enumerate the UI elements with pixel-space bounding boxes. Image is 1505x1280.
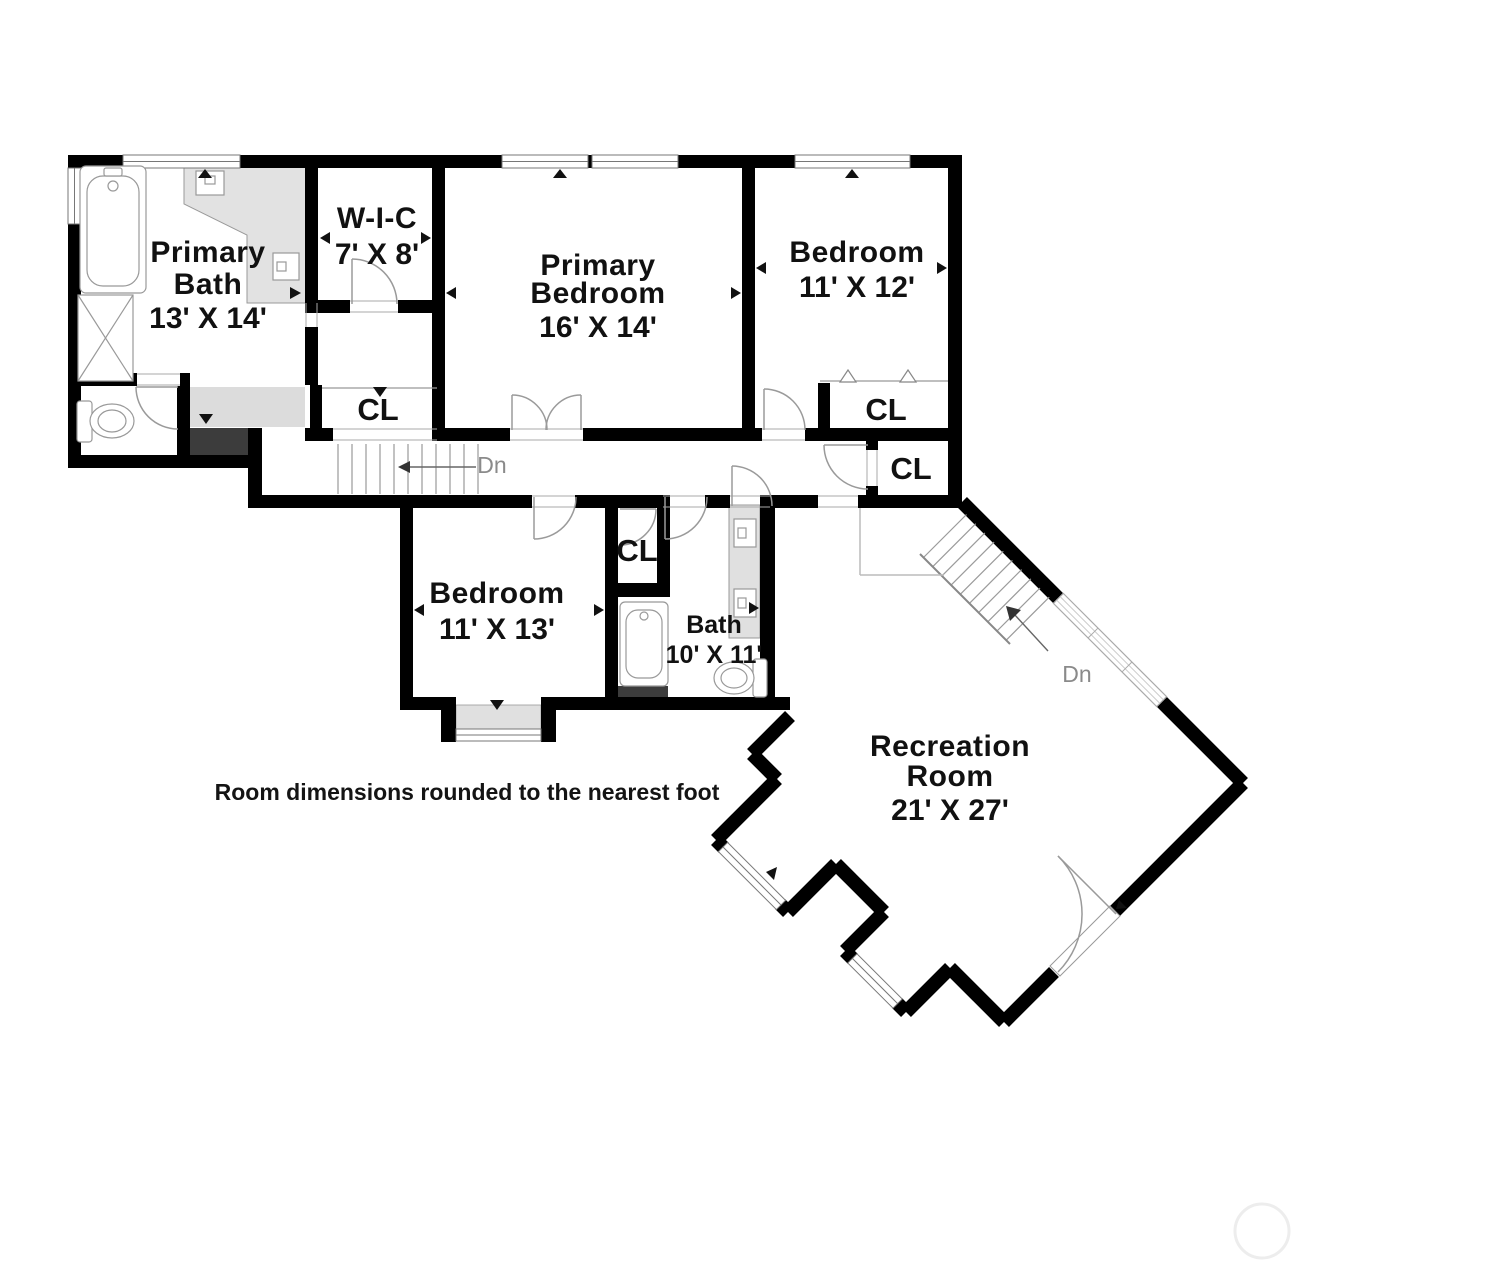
staircase-recreation [860, 508, 1167, 707]
staircase-hall [338, 444, 478, 494]
door-bedroom-lower [534, 497, 576, 539]
window-recreation-1 [718, 842, 785, 909]
door-closet-hall [824, 445, 868, 489]
door-recreation [1050, 856, 1120, 976]
room-dimensions: 11' X 12' [799, 271, 915, 304]
room-name-line: Bath [686, 611, 742, 639]
stair-rail-band [1053, 593, 1166, 706]
room-dimensions: 11' X 13' [439, 613, 555, 646]
watermark-circle [1235, 1204, 1289, 1258]
toilet-primary [77, 401, 134, 442]
door-bedroom-upper [764, 389, 805, 430]
room-label-bedroom-upper: Bedroom 11' X 12' [789, 236, 924, 304]
room-dimensions: 21' X 27' [891, 794, 1009, 827]
shower-primary [78, 295, 133, 381]
stairs-down-arrow-recreation [1006, 606, 1048, 651]
hanger-icon [900, 370, 916, 382]
dimensions-footnote: Room dimensions rounded to the nearest f… [215, 779, 720, 805]
closet-label: CL [616, 533, 657, 568]
bathtub-primary [80, 166, 146, 293]
room-name-line: Recreation [870, 730, 1030, 763]
down-label: Dn [477, 452, 506, 478]
stair-direction-labels: Dn Dn [477, 452, 1091, 687]
sink-primary-2 [273, 253, 299, 280]
window-top-3 [592, 155, 678, 168]
hanger-icon [840, 370, 856, 382]
room-name-line: Bedroom [429, 577, 564, 610]
bay-window-seat [456, 705, 541, 729]
sink-bath-1 [734, 519, 756, 547]
window-top-4 [795, 155, 910, 168]
door-bath [665, 497, 707, 539]
room-name-line: Bath [174, 268, 243, 301]
floor-plan-page: Primary Bath 13' X 14' W-I-C 7' X 8' Pri… [0, 0, 1505, 1275]
window-top-2 [502, 155, 588, 168]
sink-primary-1 [196, 171, 224, 195]
window-recreation-2 [848, 954, 902, 1008]
window-left-wall [68, 168, 81, 224]
room-dimensions: 7' X 8' [335, 238, 419, 271]
closet-rods [322, 370, 948, 388]
floor-plan-canvas: Primary Bath 13' X 14' W-I-C 7' X 8' Pri… [0, 0, 1505, 1275]
room-name-line: Bedroom [789, 236, 924, 269]
door-primary-bedroom-double [512, 395, 581, 430]
room-dimensions: 10' X 11' [666, 641, 763, 669]
room-name-line: W-I-C [337, 202, 417, 235]
room-label-primary-bedroom: Primary Bedroom 16' X 14' [530, 249, 665, 344]
closet-label: CL [890, 451, 931, 486]
stair-rail-inner [920, 554, 1010, 644]
room-name-line: Room [907, 760, 994, 793]
chase-dark-block-1 [190, 428, 248, 455]
closet-label: CL [865, 392, 906, 427]
closet-label: CL [357, 392, 398, 427]
bathtub-bath [620, 602, 668, 686]
window-bay [456, 729, 541, 741]
room-label-bedroom-lower: Bedroom 11' X 13' [429, 577, 564, 646]
room-label-recreation: Recreation Room 21' X 27' [870, 730, 1030, 827]
room-label-wic: W-I-C 7' X 8' [335, 202, 419, 271]
room-dimensions: 16' X 14' [539, 311, 657, 344]
door-toilet-room [136, 387, 178, 429]
room-name-line: Bedroom [530, 277, 665, 310]
down-label: Dn [1062, 661, 1091, 687]
room-name-line: Primary [150, 236, 265, 269]
room-dimensions: 13' X 14' [149, 302, 267, 335]
